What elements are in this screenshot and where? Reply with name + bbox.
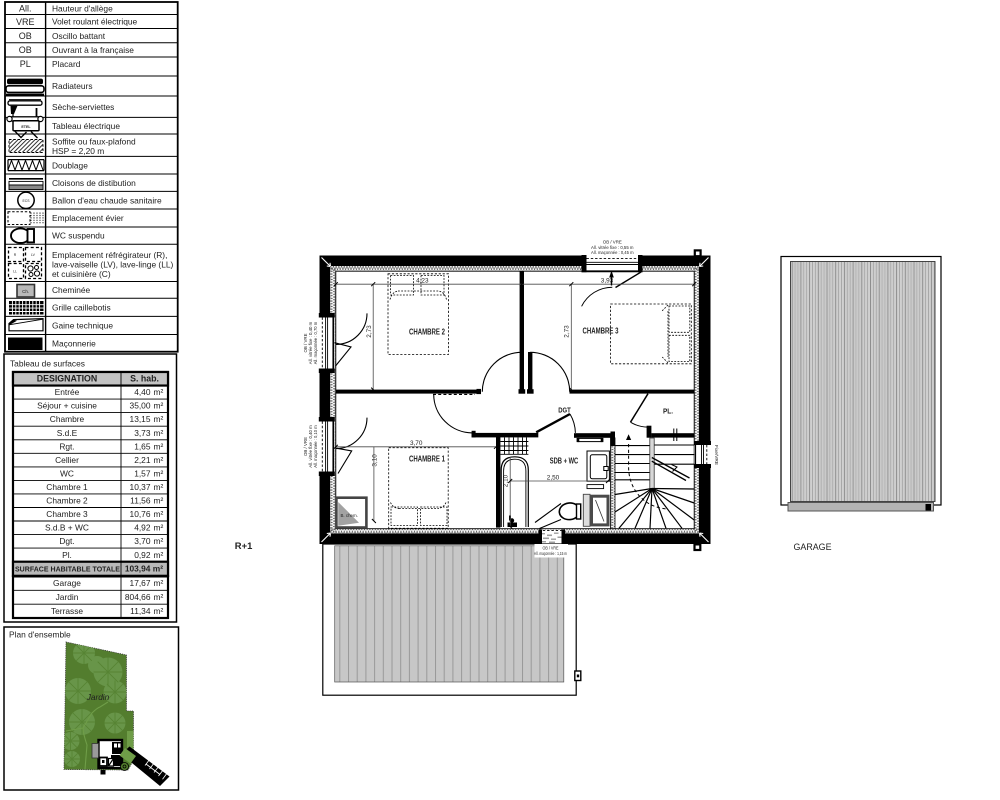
svg-text:13,15: 13,15 xyxy=(130,414,151,424)
svg-text:4,23: 4,23 xyxy=(416,278,429,285)
svg-text:Ballon d'eau chaude sanitaire: Ballon d'eau chaude sanitaire xyxy=(52,195,162,205)
svg-text:10,76: 10,76 xyxy=(130,509,151,519)
svg-text:3,10: 3,10 xyxy=(371,454,378,467)
svg-text:B. chem.: B. chem. xyxy=(341,513,358,518)
svg-text:103,94 m²: 103,94 m² xyxy=(125,564,163,574)
svg-text:2,73: 2,73 xyxy=(564,325,571,338)
svg-text:WC suspendu: WC suspendu xyxy=(52,231,105,241)
svg-text:3,70: 3,70 xyxy=(410,440,423,447)
svg-text:CHAMBRE 2: CHAMBRE 2 xyxy=(409,327,446,336)
svg-text:All. maçonnée : 0,10 m: All. maçonnée : 0,10 m xyxy=(313,425,318,468)
svg-text:3,70: 3,70 xyxy=(134,536,151,546)
svg-text:All. maçonnée : 0,70 m: All. maçonnée : 0,70 m xyxy=(313,322,318,365)
svg-text:m²: m² xyxy=(154,496,164,506)
svg-text:35,00: 35,00 xyxy=(130,401,151,411)
svg-text:10,37: 10,37 xyxy=(130,482,151,492)
svg-text:OB: OB xyxy=(19,31,32,41)
svg-text:Tableau de surfaces: Tableau de surfaces xyxy=(10,359,85,369)
svg-text:CHAMBRE 1: CHAMBRE 1 xyxy=(409,455,446,464)
svg-text:Chambre: Chambre xyxy=(50,414,85,424)
svg-text:S.d.E: S.d.E xyxy=(57,428,78,438)
svg-text:2,10: 2,10 xyxy=(503,474,510,487)
svg-text:2,50: 2,50 xyxy=(547,474,560,481)
svg-text:4,40: 4,40 xyxy=(134,387,151,397)
svg-text:PL: PL xyxy=(20,59,31,69)
svg-text:ECS: ECS xyxy=(23,199,31,203)
svg-text:m²: m² xyxy=(154,578,164,588)
svg-text:Séjour + cuisine: Séjour + cuisine xyxy=(37,401,97,411)
svg-text:1,65: 1,65 xyxy=(134,441,151,451)
svg-text:Gaine technique: Gaine technique xyxy=(52,321,113,331)
svg-text:m²: m² xyxy=(154,387,164,397)
svg-text:Plan d'ensemble: Plan d'ensemble xyxy=(9,630,71,640)
svg-text:et cuisinière (C): et cuisinière (C) xyxy=(52,269,111,279)
svg-text:m²: m² xyxy=(154,469,164,479)
svg-text:Hauteur d'allège: Hauteur d'allège xyxy=(52,3,113,13)
svg-text:Cheminée: Cheminée xyxy=(52,285,91,295)
svg-text:Radiateurs: Radiateurs xyxy=(52,81,93,91)
svg-text:WC: WC xyxy=(60,469,74,479)
svg-text:Maçonnerie: Maçonnerie xyxy=(52,338,96,348)
svg-text:Jardin: Jardin xyxy=(56,592,79,602)
svg-text:All. maçonnée : 0,45 m: All. maçonnée : 0,45 m xyxy=(591,250,634,255)
svg-text:OB: OB xyxy=(19,45,32,55)
svg-text:S.d.B + WC: S.d.B + WC xyxy=(45,523,89,533)
svg-text:VRE: VRE xyxy=(16,17,35,27)
svg-text:Ch.: Ch. xyxy=(22,289,29,294)
svg-text:PL.: PL. xyxy=(663,409,673,416)
svg-text:Rgt.: Rgt. xyxy=(59,441,74,451)
svg-text:m²: m² xyxy=(154,606,164,616)
svg-text:4,92: 4,92 xyxy=(134,523,151,533)
svg-text:m²: m² xyxy=(154,523,164,533)
svg-text:Garage: Garage xyxy=(53,578,81,588)
svg-text:m²: m² xyxy=(154,482,164,492)
svg-text:Placard: Placard xyxy=(52,59,81,69)
svg-text:Fixe/VRE: Fixe/VRE xyxy=(714,445,719,465)
svg-text:S. hab.: S. hab. xyxy=(130,374,159,384)
svg-text:11,34: 11,34 xyxy=(130,606,151,616)
svg-text:Ouvrant à la française: Ouvrant à la française xyxy=(52,45,134,55)
svg-text:SURFACE HABITABLE TOTALE: SURFACE HABITABLE TOTALE xyxy=(15,566,120,574)
svg-text:R+1: R+1 xyxy=(235,540,253,551)
svg-text:OB / VRE: OB / VRE xyxy=(543,546,559,551)
svg-text:Sèche-serviettes: Sèche-serviettes xyxy=(52,102,114,112)
svg-text:DESIGNATION: DESIGNATION xyxy=(37,374,97,384)
svg-text:LL: LL xyxy=(13,269,17,273)
svg-text:1,57: 1,57 xyxy=(134,469,151,479)
svg-text:m²: m² xyxy=(154,401,164,411)
svg-text:17,67: 17,67 xyxy=(130,578,151,588)
svg-text:2,73: 2,73 xyxy=(366,325,373,338)
svg-text:Oscillo battant: Oscillo battant xyxy=(52,31,106,41)
svg-text:Tableau électrique: Tableau électrique xyxy=(52,121,120,131)
svg-text:m²: m² xyxy=(154,455,164,465)
svg-text:m²: m² xyxy=(154,509,164,519)
svg-text:Entrée: Entrée xyxy=(55,387,80,397)
svg-text:m²: m² xyxy=(154,428,164,438)
svg-text:DGT: DGT xyxy=(558,407,571,414)
svg-text:All. maçonnée : 1,15 m: All. maçonnée : 1,15 m xyxy=(534,551,567,556)
svg-text:Chambre 2: Chambre 2 xyxy=(46,496,88,506)
svg-text:0,92: 0,92 xyxy=(134,550,151,560)
svg-text:m²: m² xyxy=(154,441,164,451)
svg-text:Doublage: Doublage xyxy=(52,160,88,170)
svg-text:HSP = 2,20 m: HSP = 2,20 m xyxy=(52,146,104,156)
svg-text:Cloisons de distibution: Cloisons de distibution xyxy=(52,178,136,188)
svg-text:m²: m² xyxy=(154,550,164,560)
svg-text:2,21: 2,21 xyxy=(134,455,151,465)
svg-text:804,66: 804,66 xyxy=(125,592,151,602)
svg-text:Chambre 3: Chambre 3 xyxy=(46,509,88,519)
svg-text:SDB + WC: SDB + WC xyxy=(550,457,579,466)
svg-text:ETEL: ETEL xyxy=(21,125,31,129)
svg-text:Terrasse: Terrasse xyxy=(51,606,83,616)
svg-text:3,73: 3,73 xyxy=(134,428,151,438)
svg-text:Dgt.: Dgt. xyxy=(59,536,74,546)
svg-text:Chambre 1: Chambre 1 xyxy=(46,482,88,492)
svg-text:Grille caillebotis: Grille caillebotis xyxy=(52,303,111,313)
svg-text:GARAGE: GARAGE xyxy=(794,541,832,552)
svg-text:m²: m² xyxy=(154,592,164,602)
svg-text:CHAMBRE 3: CHAMBRE 3 xyxy=(583,327,620,336)
svg-text:All.: All. xyxy=(19,4,32,14)
svg-text:Pl.: Pl. xyxy=(62,550,72,560)
svg-text:Emplacement évier: Emplacement évier xyxy=(52,213,124,223)
svg-text:Jardin: Jardin xyxy=(86,693,110,702)
svg-text:11,56: 11,56 xyxy=(130,496,151,506)
svg-text:m²: m² xyxy=(154,536,164,546)
svg-text:m²: m² xyxy=(154,414,164,424)
svg-text:Cellier: Cellier xyxy=(55,455,79,465)
svg-text:Volet roulant électrique: Volet roulant électrique xyxy=(52,17,138,27)
